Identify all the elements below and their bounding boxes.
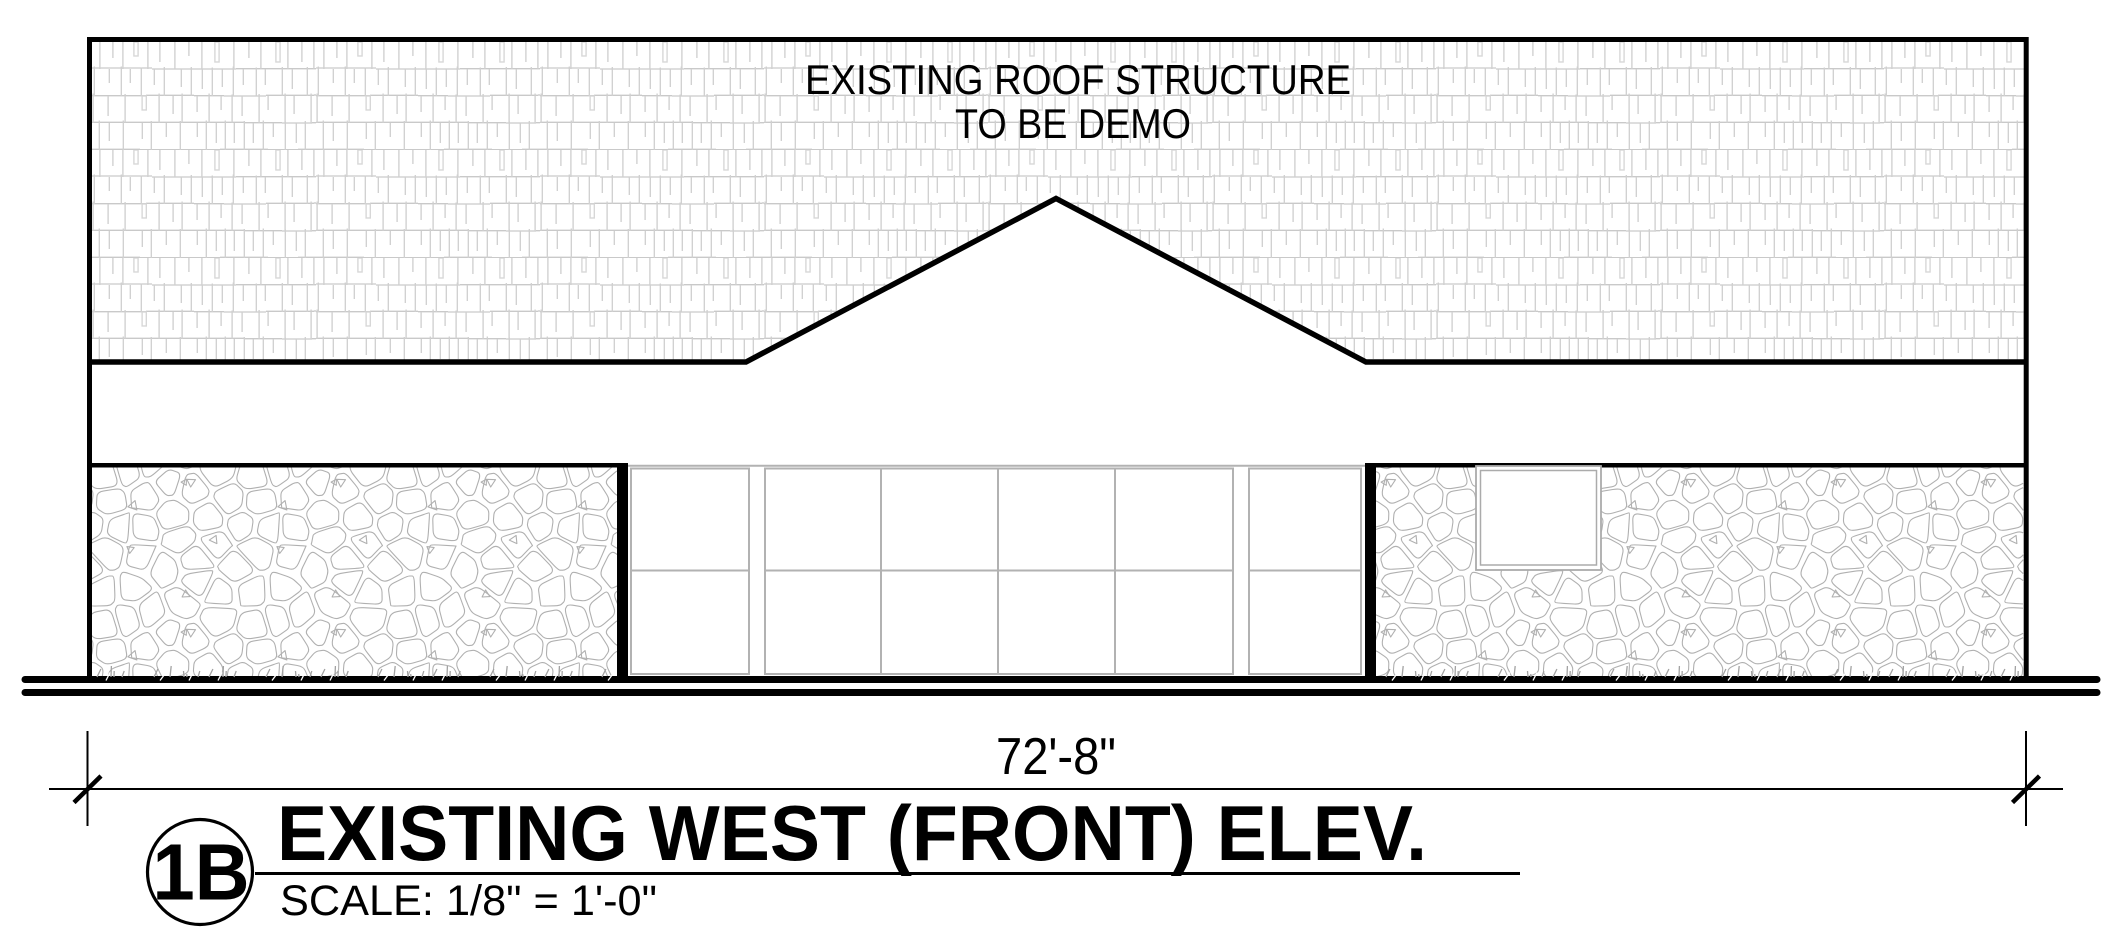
svg-text:SCALE: 1/8" = 1'-0": SCALE: 1/8" = 1'-0" — [280, 877, 657, 925]
svg-text:1B: 1B — [153, 828, 250, 917]
svg-text:EXISTING WEST (FRONT) ELEV.: EXISTING WEST (FRONT) ELEV. — [277, 789, 1427, 877]
svg-text:EXISTING ROOF STRUCTURE: EXISTING ROOF STRUCTURE — [805, 56, 1351, 103]
svg-text:TO BE DEMO: TO BE DEMO — [955, 100, 1191, 147]
svg-text:72'-8": 72'-8" — [996, 728, 1116, 786]
